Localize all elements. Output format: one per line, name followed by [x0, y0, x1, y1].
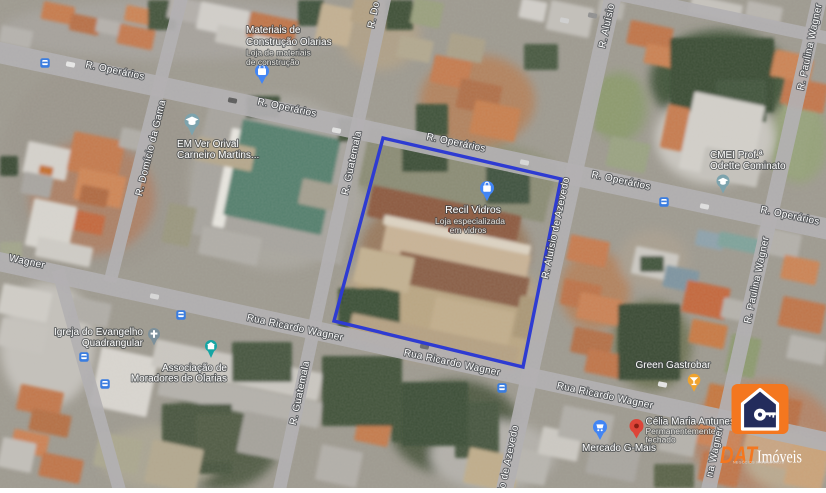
svg-text:Odette Cominato: Odette Cominato: [710, 161, 786, 172]
svg-text:Carneiro Martins...: Carneiro Martins...: [177, 150, 259, 161]
svg-text:em vidros: em vidros: [450, 225, 487, 235]
svg-text:Igreja do Evangelho: Igreja do Evangelho: [54, 327, 143, 338]
svg-text:Green Gastrobar: Green Gastrobar: [635, 360, 711, 371]
svg-text:Mercado G-Mais: Mercado G-Mais: [582, 443, 656, 454]
svg-text:DAT: DAT: [720, 442, 759, 469]
svg-text:Moradores de Olarias: Moradores de Olarias: [131, 374, 227, 385]
svg-text:Quadrangular: Quadrangular: [82, 338, 144, 349]
svg-text:NEGÓCIOS IMOBILIÁRIOS: NEGÓCIOS IMOBILIÁRIOS: [733, 460, 784, 465]
svg-text:Loja de materiais: Loja de materiais: [246, 48, 311, 58]
svg-text:CMEI Prof.ª: CMEI Prof.ª: [710, 150, 763, 161]
svg-text:Materiais de: Materiais de: [246, 25, 301, 36]
svg-text:Construção Olarias: Construção Olarias: [246, 37, 332, 48]
svg-text:Recil Vidros: Recil Vidros: [445, 204, 501, 216]
svg-text:Associação de: Associação de: [162, 363, 227, 374]
svg-text:de construção: de construção: [246, 57, 300, 67]
svg-text:EM Ver Orival: EM Ver Orival: [177, 139, 239, 150]
